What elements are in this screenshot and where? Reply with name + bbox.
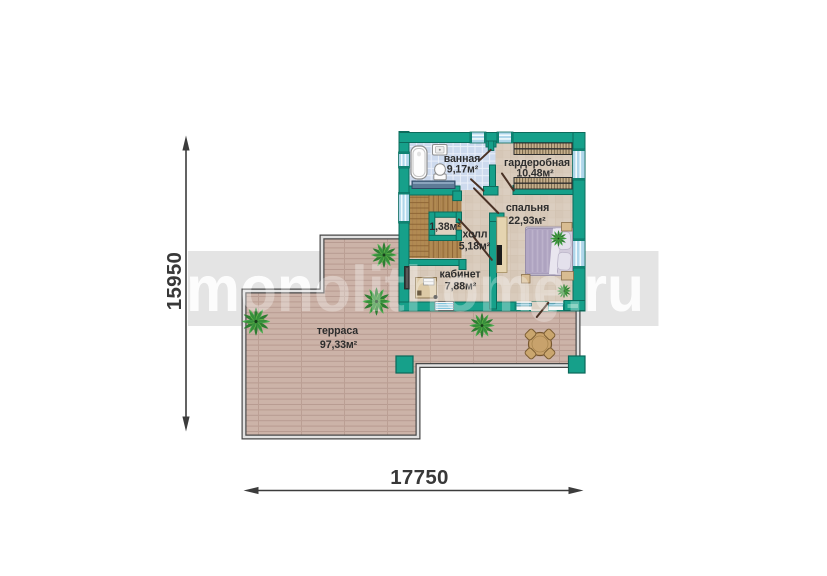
svg-text:холл: холл: [463, 229, 488, 241]
svg-text:17750: 17750: [390, 466, 449, 489]
svg-text:9,17м²: 9,17м²: [447, 164, 479, 176]
svg-text:5,18м²: 5,18м²: [459, 241, 491, 253]
svg-text:терраса: терраса: [317, 325, 358, 337]
svg-text:monolithome.ru: monolithome.ru: [186, 252, 644, 325]
svg-text:1,38м²: 1,38м²: [429, 221, 461, 233]
svg-text:спальня: спальня: [506, 202, 549, 214]
svg-text:22,93м²: 22,93м²: [508, 215, 546, 227]
svg-text:10,48м²: 10,48м²: [516, 168, 554, 180]
svg-text:15950: 15950: [163, 252, 186, 311]
svg-text:97,33м²: 97,33м²: [320, 339, 358, 351]
